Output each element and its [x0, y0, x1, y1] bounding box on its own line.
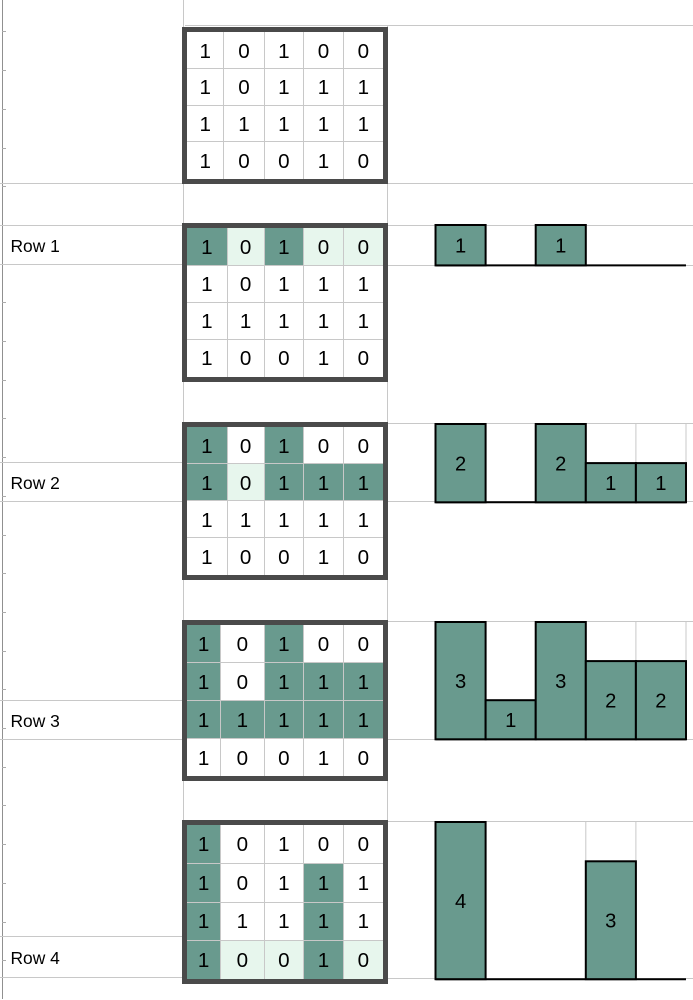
svg-text:2: 2: [605, 690, 616, 712]
svg-text:1: 1: [455, 236, 466, 258]
svg-text:1: 1: [555, 236, 566, 258]
svg-text:2: 2: [655, 690, 666, 712]
svg-text:3: 3: [605, 910, 616, 932]
svg-text:1: 1: [505, 710, 516, 732]
svg-text:2: 2: [455, 453, 466, 475]
svg-text:1: 1: [655, 472, 666, 494]
svg-text:4: 4: [455, 891, 466, 913]
svg-text:2: 2: [555, 453, 566, 475]
svg-text:1: 1: [605, 472, 616, 494]
svg-text:3: 3: [555, 671, 566, 693]
svg-text:3: 3: [455, 671, 466, 693]
